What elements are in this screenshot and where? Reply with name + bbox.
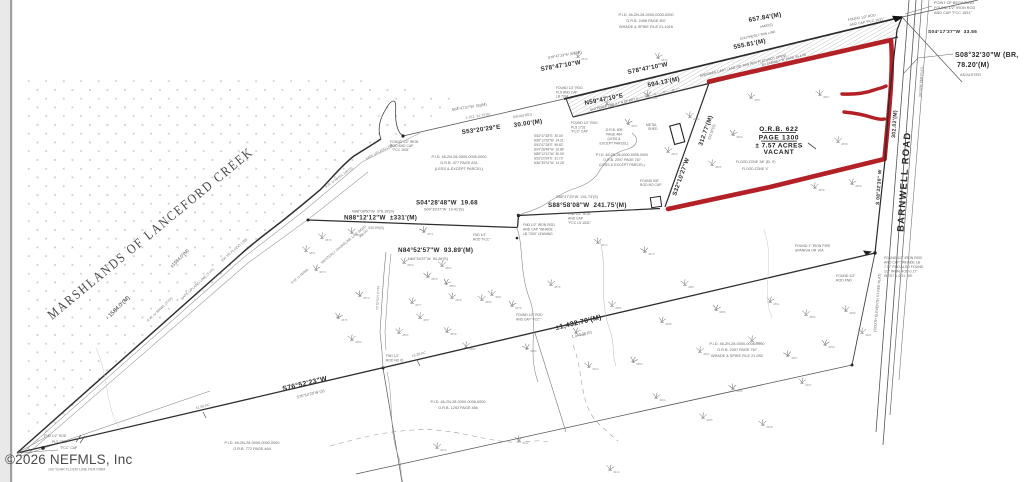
svg-text:(LESS & EXCEPT PARCEL): (LESS & EXCEPT PARCEL) bbox=[599, 163, 644, 167]
svg-text:4861: 4861 bbox=[651, 96, 658, 100]
svg-text:LB 7334" LEANING: LB 7334" LEANING bbox=[523, 232, 553, 236]
svg-text:PLS 1731: PLS 1731 bbox=[52, 440, 67, 444]
svg-text:FND 1/2" IRON ROD: FND 1/2" IRON ROD bbox=[523, 223, 555, 227]
svg-text:4851: 4851 bbox=[309, 251, 316, 255]
svg-text:4880: 4880 bbox=[469, 347, 476, 351]
svg-text:4893: 4893 bbox=[703, 352, 710, 356]
svg-text:O.R.B. 2097 PAGE 767: O.R.B. 2097 PAGE 767 bbox=[603, 158, 641, 162]
svg-text:4896: 4896 bbox=[736, 389, 743, 393]
svg-text:4908: 4908 bbox=[766, 425, 773, 429]
svg-text:N88°12'12"W ±331'(M): N88°12'12"W ±331'(M) bbox=[344, 214, 417, 222]
svg-text:4866: 4866 bbox=[736, 135, 743, 139]
svg-text:4894: 4894 bbox=[755, 341, 762, 345]
svg-text:4855: 4855 bbox=[431, 277, 438, 281]
svg-text:4856: 4856 bbox=[455, 298, 462, 302]
svg-text:4891: 4891 bbox=[773, 302, 780, 306]
svg-text:P.I.D. 46-2N-28-0000-0003-0000: P.I.D. 46-2N-28-0000-0003-0000 bbox=[618, 13, 673, 17]
svg-text:O.R.B. 772 PAGE 464: O.R.B. 772 PAGE 464 bbox=[233, 447, 271, 451]
svg-text:4882: 4882 bbox=[355, 340, 362, 344]
svg-text:S53°47'28"E 59.82': S53°47'28"E 59.82' bbox=[534, 143, 564, 147]
svg-text:S53°47'28"E 30.00': S53°47'28"E 30.00' bbox=[534, 134, 564, 138]
svg-text:4853: 4853 bbox=[407, 263, 414, 267]
svg-text:100 YEAR FLOOD LINE PER FIRM: 100 YEAR FLOOD LINE PER FIRM bbox=[48, 468, 105, 472]
svg-text:4889: 4889 bbox=[719, 310, 726, 314]
svg-text:"FCC" CAP: "FCC" CAP bbox=[571, 130, 589, 134]
svg-text:FLOOD ZONE 'X': FLOOD ZONE 'X' bbox=[742, 167, 769, 171]
svg-text:S04°17'37"W 33.55: S04°17'37"W 33.55 bbox=[928, 29, 977, 35]
svg-text:O.R.B. 2097 PAGE 767: O.R.B. 2097 PAGE 767 bbox=[717, 348, 757, 352]
svg-text:4888: 4888 bbox=[665, 322, 672, 326]
svg-text:O.R.B. 477 PAGE 831: O.R.B. 477 PAGE 831 bbox=[440, 161, 478, 165]
svg-text:1/2" IRON ROD 0.17': 1/2" IRON ROD 0.17' bbox=[884, 270, 917, 274]
svg-text:4865: 4865 bbox=[715, 165, 722, 169]
svg-text:P.I.D. 46-2N-28-0000-0005-0000: P.I.D. 46-2N-28-0000-0005-0000 bbox=[596, 153, 648, 157]
svg-text:ROD "FCC": ROD "FCC" bbox=[473, 238, 491, 242]
svg-text:O.R.B. 2496 PAGE 807: O.R.B. 2496 PAGE 807 bbox=[626, 19, 666, 23]
svg-text:O.R.B. 622: O.R.B. 622 bbox=[759, 126, 799, 133]
svg-text:4914: 4914 bbox=[613, 470, 620, 474]
svg-text:O.R.B. 1292 PAGE 466: O.R.B. 1292 PAGE 466 bbox=[438, 406, 478, 410]
svg-text:FOUND 1/2": FOUND 1/2" bbox=[836, 274, 856, 278]
svg-text:"FCC 1531": "FCC 1531" bbox=[392, 148, 411, 152]
svg-text:S88°58'08"W 241.75'(M): S88°58'08"W 241.75'(M) bbox=[548, 201, 627, 209]
svg-text:FOUND 1/2" IRON ROD: FOUND 1/2" IRON ROD bbox=[884, 256, 922, 260]
svg-text:S04°39'37"W 19.41'(S): S04°39'37"W 19.41'(S) bbox=[424, 208, 465, 212]
svg-text:4867: 4867 bbox=[823, 95, 830, 99]
svg-text:4863: 4863 bbox=[671, 152, 678, 156]
svg-text:AND CAP "WHADE LB: AND CAP "WHADE LB bbox=[884, 261, 921, 265]
svg-text:P.I.D. 46-2N-28-0000-0006-0000: P.I.D. 46-2N-28-0000-0006-0000 bbox=[430, 400, 485, 404]
svg-text:ROD FND: ROD FND bbox=[836, 279, 852, 283]
svg-text:"FCC LS 1531": "FCC LS 1531" bbox=[568, 221, 592, 225]
svg-text:4902: 4902 bbox=[592, 367, 599, 371]
svg-text:FND 1/2" ROD: FND 1/2" ROD bbox=[568, 212, 591, 216]
svg-text:FOUND 1/2" ROD: FOUND 1/2" ROD bbox=[516, 313, 543, 317]
svg-text:FND 1/2": FND 1/2" bbox=[386, 354, 400, 358]
svg-text:4884: 4884 bbox=[402, 333, 409, 337]
svg-text:4862: 4862 bbox=[631, 124, 638, 128]
svg-text:4895: 4895 bbox=[809, 315, 816, 319]
svg-text:P.I.D. 46-2N-28-0000-0005-0000: P.I.D. 46-2N-28-0000-0005-0000 bbox=[431, 155, 486, 159]
svg-text:POINT OF BEGINNING: POINT OF BEGINNING bbox=[934, 1, 974, 5]
svg-text:4897: 4897 bbox=[791, 356, 798, 360]
svg-text:FND 1/2" ROD: FND 1/2" ROD bbox=[44, 434, 67, 438]
svg-text:N88°08'50"W 378.18'(S): N88°08'50"W 378.18'(S) bbox=[352, 210, 395, 214]
svg-text:S04°28'48"W 19.68: S04°28'48"W 19.68 bbox=[416, 200, 478, 207]
svg-text:ROD NO ID: ROD NO ID bbox=[386, 359, 404, 363]
svg-text:4879: 4879 bbox=[648, 252, 655, 256]
svg-text:4857: 4857 bbox=[423, 318, 430, 322]
svg-text:WHADE & SPIKE FILE 21-092: WHADE & SPIKE FILE 21-092 bbox=[711, 354, 763, 358]
svg-text:FOUND 1" IRON PIPE: FOUND 1" IRON PIPE bbox=[795, 244, 831, 248]
svg-text:4854: 4854 bbox=[445, 266, 452, 270]
svg-text:FOUND 1/2" IRON ROD: FOUND 1/2" IRON ROD bbox=[934, 6, 975, 10]
svg-text:4910: 4910 bbox=[440, 448, 447, 452]
svg-text:FLOOD ZONE 'AE' (EL 9'): FLOOD ZONE 'AE' (EL 9') bbox=[736, 160, 776, 164]
svg-text:WEST & 0.31' S/E: WEST & 0.31' S/E bbox=[884, 274, 913, 278]
svg-text:4859: 4859 bbox=[485, 300, 492, 304]
svg-text:4859: 4859 bbox=[855, 184, 862, 188]
svg-text:4842: 4842 bbox=[661, 58, 668, 62]
svg-text:S04°28'48"W 19.68': S04°28'48"W 19.68' bbox=[534, 148, 565, 152]
svg-text:SHED: SHED bbox=[648, 127, 658, 131]
svg-text:N36°12'32"W 14.21': N36°12'32"W 14.21' bbox=[534, 139, 565, 143]
svg-text:4871: 4871 bbox=[427, 232, 434, 236]
svg-text:SPANISH OR 10A: SPANISH OR 10A bbox=[795, 249, 824, 253]
svg-text:N88°12'12"W 30.00': N88°12'12"W 30.00' bbox=[534, 152, 565, 156]
svg-text:4887: 4887 bbox=[688, 285, 695, 289]
svg-text:4869: 4869 bbox=[449, 284, 456, 288]
svg-text:4857: 4857 bbox=[754, 98, 761, 102]
svg-text:4904: 4904 bbox=[659, 398, 666, 402]
svg-text:4873: 4873 bbox=[319, 270, 326, 274]
svg-text:4878: 4878 bbox=[515, 306, 522, 310]
svg-text:S53°20'29"E 31.72': S53°20'29"E 31.72' bbox=[534, 157, 564, 161]
svg-text:4886: 4886 bbox=[615, 306, 622, 310]
svg-text:VACANT: VACANT bbox=[764, 149, 795, 156]
svg-text:4872: 4872 bbox=[363, 296, 370, 300]
svg-text:4883: 4883 bbox=[530, 349, 537, 353]
svg-text:7.17' FND ALSO FOUND: 7.17' FND ALSO FOUND bbox=[884, 265, 924, 269]
svg-text:4868: 4868 bbox=[841, 142, 848, 146]
svg-text:P.I.D. 46-2N-28-0000-0000-0000: P.I.D. 46-2N-28-0000-0000-0000 bbox=[224, 441, 279, 445]
svg-text:S08°32'30"W (BR,: S08°32'30"W (BR, bbox=[955, 51, 1019, 59]
svg-text:AND CAP "FCC 1531": AND CAP "FCC 1531" bbox=[934, 11, 973, 15]
svg-text:4890: 4890 bbox=[636, 362, 643, 366]
svg-text:©2026 NEFMLS, Inc: ©2026 NEFMLS, Inc bbox=[5, 452, 132, 467]
svg-text:4858: 4858 bbox=[818, 188, 825, 192]
svg-text:AND CAP "WHADE: AND CAP "WHADE bbox=[523, 228, 554, 232]
svg-text:4899: 4899 bbox=[828, 345, 835, 349]
svg-text:4864: 4864 bbox=[693, 117, 700, 121]
svg-text:4852: 4852 bbox=[355, 233, 362, 237]
svg-text:AND CAP: AND CAP bbox=[568, 217, 584, 221]
svg-text:(LESS & EXCEPT PARCEL): (LESS & EXCEPT PARCEL) bbox=[435, 167, 484, 171]
svg-text:ROD NO CAP: ROD NO CAP bbox=[640, 183, 662, 187]
svg-text:4840: 4840 bbox=[581, 57, 588, 61]
svg-text:4906: 4906 bbox=[706, 418, 713, 422]
svg-text:FND 1/2": FND 1/2" bbox=[473, 233, 487, 237]
svg-text:4876: 4876 bbox=[554, 285, 561, 289]
svg-text:4860: 4860 bbox=[610, 104, 617, 108]
svg-text:WHADE & SPIKE FILE 21-1016: WHADE & SPIKE FILE 21-1016 bbox=[619, 25, 673, 29]
svg-text:AND CAP "FCC": AND CAP "FCC" bbox=[516, 318, 541, 322]
svg-text:4907: 4907 bbox=[805, 383, 812, 387]
svg-text:PAGE 484: PAGE 484 bbox=[606, 133, 622, 137]
svg-text:330.99'(D): 330.99'(D) bbox=[368, 226, 384, 230]
svg-text:4874: 4874 bbox=[601, 243, 608, 247]
svg-text:4875: 4875 bbox=[341, 318, 348, 322]
svg-text:N84°52'57"W 93.89'(M): N84°52'57"W 93.89'(M) bbox=[398, 246, 473, 254]
svg-text:4885: 4885 bbox=[579, 333, 586, 337]
svg-text:O.R.B. 605: O.R.B. 605 bbox=[606, 128, 623, 132]
svg-text:S88°47'29"W 241.73'(S): S88°47'29"W 241.73'(S) bbox=[556, 195, 599, 199]
svg-text:4898: 4898 bbox=[849, 311, 856, 315]
svg-text:(LESS &: (LESS & bbox=[607, 137, 621, 141]
svg-text:4877: 4877 bbox=[415, 303, 422, 307]
svg-text:78.20'(M): 78.20'(M) bbox=[957, 62, 989, 69]
svg-text:4870: 4870 bbox=[325, 238, 332, 242]
svg-text:4901: 4901 bbox=[865, 333, 872, 337]
svg-text:"FCC" CAP: "FCC" CAP bbox=[60, 446, 78, 450]
svg-text:LB 7334: LB 7334 bbox=[556, 95, 568, 99]
svg-text:PAGE 1300: PAGE 1300 bbox=[759, 135, 800, 142]
svg-text:4858: 4858 bbox=[450, 332, 457, 336]
svg-text:EXCEPT PARCEL): EXCEPT PARCEL) bbox=[600, 142, 629, 146]
svg-text:N84°54'37"W 94.26'(S): N84°54'37"W 94.26'(S) bbox=[408, 257, 449, 261]
svg-text:ADJUSTED: ADJUSTED bbox=[960, 72, 981, 77]
svg-text:N36°39'31"W 14.26': N36°39'31"W 14.26' bbox=[534, 161, 565, 165]
svg-text:4881: 4881 bbox=[495, 295, 502, 299]
